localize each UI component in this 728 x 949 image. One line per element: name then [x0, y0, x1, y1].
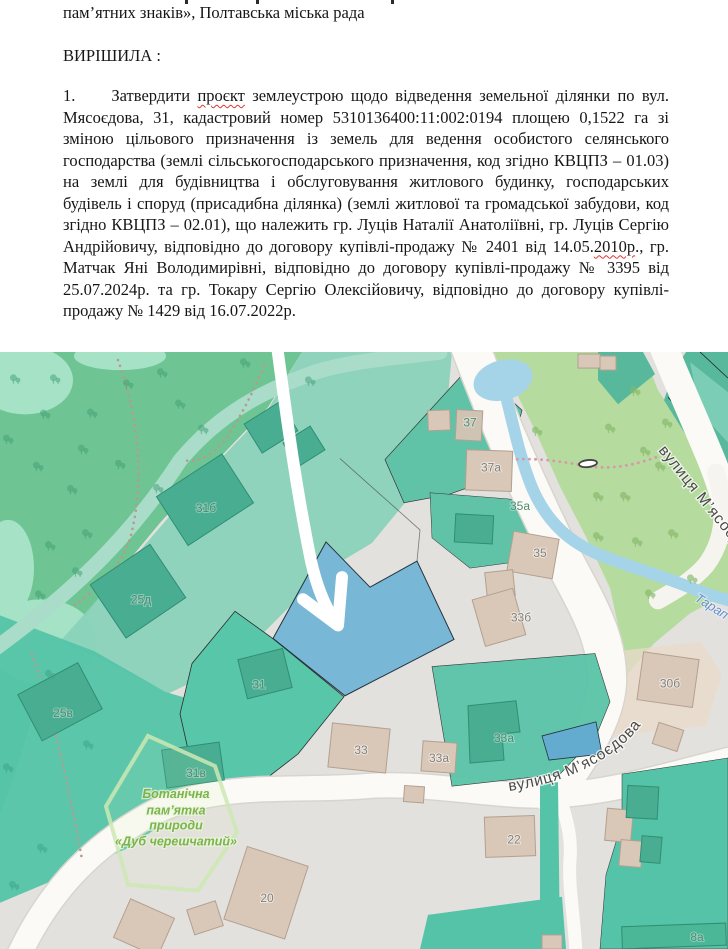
clipped-line-fragment	[256, 0, 259, 4]
building-label: 33	[354, 743, 368, 757]
document-page: пам’ятних знаків», Полтавська міська рад…	[0, 0, 728, 949]
map-svg: 31б 25д 25в 31в 31 37 37а 35а 35 33б 30б…	[0, 352, 728, 949]
building-label: 20	[260, 891, 274, 905]
building-label: 33а	[429, 751, 449, 765]
building-label: 22	[507, 832, 521, 846]
spellcheck-word: 2010р	[594, 237, 635, 256]
building-label: 37	[463, 415, 477, 429]
parcel-strip	[540, 782, 560, 949]
svg-text:«Дуб черешчатий»: «Дуб черешчатий»	[115, 834, 237, 848]
building-label: 31б	[196, 501, 216, 515]
doc-line-top: пам’ятних знаків», Полтавська міська рад…	[63, 2, 669, 24]
paragraph-text: землеустрою щодо відведення земельної ді…	[63, 86, 669, 256]
building-label: 37а	[481, 461, 501, 475]
paragraph-text: Затвердити	[111, 86, 197, 105]
building-label: 31	[252, 678, 266, 692]
building-label: 30б	[660, 677, 680, 691]
clipped-line-fragment	[185, 0, 188, 4]
svg-text:пам’ятка: пам’ятка	[146, 803, 205, 817]
building-label: 35а	[510, 499, 530, 513]
building-label: 33б	[511, 610, 531, 624]
doc-paragraph: 1.Затвердити проєкт землеустрою щодо від…	[63, 85, 669, 322]
building-label: 25д	[131, 592, 151, 606]
paragraph-number: 1.	[63, 86, 75, 105]
building-label: 31в	[186, 766, 206, 780]
spellcheck-word: проєкт	[197, 86, 244, 105]
building-label: 8а	[690, 930, 704, 944]
svg-text:природи: природи	[149, 818, 203, 832]
embedded-map-image: 31б 25д 25в 31в 31 37 37а 35а 35 33б 30б…	[0, 352, 728, 949]
building-label: 35	[533, 546, 547, 560]
document: пам’ятних знаків», Полтавська міська рад…	[0, 0, 728, 354]
building-label: 33а	[494, 731, 514, 745]
building-label: 25в	[53, 706, 73, 720]
doc-heading: ВИРІШИЛА :	[63, 45, 669, 67]
svg-text:Ботанічна: Ботанічна	[142, 787, 209, 801]
clipped-line-fragment	[391, 0, 394, 4]
